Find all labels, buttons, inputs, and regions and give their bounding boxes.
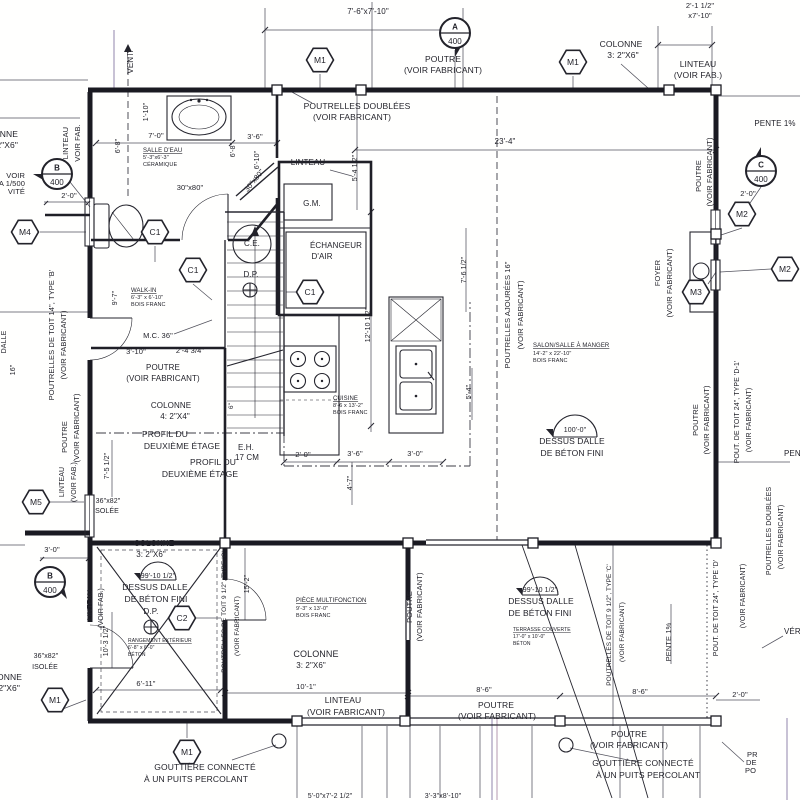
- label-deuxi-me-tage-68: DEUXIÈME ÉTAGE: [144, 441, 221, 451]
- label-pout-de-toit-24-type-d-103: POUT. DE TOIT 24", TYPE 'D': [713, 560, 720, 656]
- gutter-connection-right: [559, 738, 573, 752]
- label-dessus-dalle-135: DESSUS DALLE: [508, 596, 574, 606]
- label-voir-fabricant-27: (VOIR FABRICANT): [72, 393, 81, 463]
- scan-lines: [114, 30, 787, 800]
- label-12-10-1-2-55: 12'-10 1/2": [365, 307, 372, 342]
- section-marker-a-0: A400: [440, 18, 470, 57]
- label-14-2-x-22-10-87: 14'-2" x 22'-10": [533, 351, 572, 357]
- label-5-4-82: 5'-4": [466, 384, 473, 399]
- label-voir-fabricant-123: (VOIR FABRICANT): [234, 596, 241, 656]
- label-pente-1-106: PENTE 1%: [664, 622, 673, 661]
- label-3-2-x6-37: 3: 2"X6": [0, 683, 20, 693]
- gm-closet: G.M.: [303, 199, 321, 208]
- hex-marker-label: M1: [181, 747, 193, 757]
- label-3-2-x6-6: 3: 2"X6": [607, 50, 638, 60]
- label-poutrelles-de-toit-9-1-2-typ-122: POUTRELLES DE TOIT 9 1/2", TYPE 'C': [221, 551, 228, 673]
- label-6-11-117: 6'-11": [136, 679, 155, 688]
- room-terrasse: TERRASSE COUVERTE: [513, 627, 571, 633]
- label-6-74: 6": [228, 402, 235, 409]
- label-17-0-x-10-0-138: 17'-0" x 10'-0": [513, 634, 545, 640]
- walls-layer: [25, 90, 720, 725]
- gutter-connection-left: [272, 734, 286, 748]
- floor-drain-symbol-1: [243, 283, 257, 297]
- vent-note: VENT.: [126, 50, 135, 73]
- section-sheet-number: 400: [43, 586, 57, 595]
- label-c-ramique-43: CÉRAMIQUE: [143, 161, 177, 168]
- hex-marker-label: M2: [736, 209, 748, 219]
- section-letter: C: [758, 161, 764, 170]
- gutter-note-right: GOUTTIÈRE CONNECTÉ: [592, 758, 694, 768]
- label-voir-fabricant-133: (VOIR FABRICANT): [415, 572, 424, 642]
- section-marker-c-2: C400: [746, 147, 776, 186]
- label-3-3-x8-10-154: 3'-3"x8'-10": [425, 793, 462, 800]
- hex-marker-label: M1: [49, 695, 61, 705]
- hex-marker-m1-12: M1: [174, 740, 201, 763]
- label-poutre-97: POUTRE: [691, 404, 700, 436]
- room-salle-deau: SALLE D'EAU: [143, 148, 182, 154]
- label-voir-fabricant-64: (VOIR FABRICANT): [126, 374, 200, 383]
- label-b-ton-139: BÉTON: [513, 640, 531, 647]
- label-voir-fabricant-104: (VOIR FABRICANT): [740, 564, 747, 629]
- label-e-h-71: E.H.: [238, 443, 254, 452]
- floor-drain-symbol-2: [144, 620, 158, 634]
- dim-top-opening: 7'-6"x7'-10": [347, 7, 389, 16]
- hex-marker-c1-4: C1: [180, 258, 207, 281]
- section-letter: B: [47, 572, 53, 581]
- label-3-6-80: 3'-6": [347, 449, 363, 458]
- hex-marker-m2-7: M2: [729, 202, 756, 225]
- doubled-joists-note: POUTRELLES DOUBLÉES: [304, 101, 411, 111]
- label-colonne-127: COLONNE: [293, 649, 338, 659]
- label-poutre-94: POUTRE: [694, 160, 703, 192]
- label-5-0-x7-2-1-2-153: 5'-0"x7'-2 1/2": [308, 793, 353, 800]
- hex-marker-m4-2: M4: [12, 220, 39, 243]
- gutter-note-left: GOUTTIÈRE CONNECTÉ: [154, 762, 256, 772]
- label-un-puits-percolant-150: À UN PUITS PERCOLANT: [596, 770, 700, 780]
- label-de-b-ton-fini-112: DE BÉTON FINI: [124, 594, 187, 604]
- label-linteau-29: LINTEAU: [59, 467, 66, 497]
- label-4-7-76: 4'-7": [347, 475, 354, 490]
- label-6-8-46: 6'-8": [230, 142, 237, 157]
- hex-marker-label: M5: [30, 497, 42, 507]
- label-voir-fab-30: (VOIR FAB.): [71, 462, 78, 502]
- label-x7-10-10: x7'-10": [688, 11, 712, 20]
- label-colonne-36: COLONNE: [0, 672, 22, 682]
- label-3-2-x6-109: 3: 2"X6": [136, 550, 166, 559]
- label-voir-fabricant-85: (VOIR FABRICANT): [516, 280, 525, 350]
- label-8-6-x-13-2-78: 8'-6 x 13'-2": [333, 403, 363, 409]
- label-2-0-144: 2'-0": [732, 690, 748, 699]
- slope-note: PENTE 1%: [754, 119, 795, 128]
- elevation-terrasse: 99'-10 1/2": [523, 587, 558, 594]
- door-size-bath: 30"x80": [177, 183, 204, 192]
- label-dessus-dalle-90: DESSUS DALLE: [539, 436, 605, 446]
- label-linteau-16: LINTEAU: [61, 127, 70, 159]
- room-walkin: WALK-IN: [131, 288, 156, 294]
- floor-plan-page: M1M1M4C1C1C1M5M2M2M3C2M1M1A400B400C400B4…: [0, 0, 800, 800]
- label-17-cm-72: 17 CM: [235, 453, 259, 462]
- hex-marker-label: M1: [567, 57, 579, 67]
- hex-marker-c1-3: C1: [142, 220, 169, 243]
- label-8-6-143: 8'-6": [632, 687, 648, 696]
- label-poutre-145: POUTRE: [478, 700, 514, 710]
- posts-layer: [220, 85, 721, 726]
- bathroom-sink: [167, 96, 231, 140]
- label-voir-fabricant-131: (VOIR FABRICANT): [307, 707, 385, 717]
- label-3-2-x6-128: 3: 2"X6": [296, 661, 326, 670]
- label-voir-fabricant-100: (VOIR FABRICANT): [746, 388, 753, 453]
- label-voir-fabricant-4: (VOIR FABRICANT): [313, 112, 391, 122]
- label-16-23: 16": [10, 364, 17, 375]
- label-v-rifier-107: VÉRIFIER: [784, 627, 800, 636]
- label-3-2-x6-15: 3: 2"X6": [0, 140, 18, 150]
- floor-plan-svg: M1M1M4C1C1C1M5M2M2M3C2M1M1A400B400C400B4…: [0, 0, 800, 800]
- section-sheet-number: 400: [448, 37, 462, 46]
- label-bois-franc-126: BOIS FRANC: [296, 613, 331, 619]
- label-1-10-38: 1'-10": [143, 102, 150, 121]
- label-3-10-61: 3'-10": [126, 347, 146, 356]
- floor-drain-1: D.P.: [244, 270, 259, 279]
- label-bois-franc-88: BOIS FRANC: [533, 358, 568, 364]
- label-5-4-1-2-75: 5'-4 1/2": [352, 154, 359, 181]
- hex-marker-label: C1: [304, 287, 315, 297]
- label-deuxi-me-tage-70: DEUXIÈME ÉTAGE: [162, 469, 239, 479]
- label-poutrelles-de-toit-9-1-2-typ-140: POUTRELLES DE TOIT 9 1/2", TYPE 'C': [606, 564, 613, 686]
- label-poutre-132: POUTRE: [405, 591, 414, 623]
- label-linteau-130: LINTEAU: [325, 695, 362, 705]
- hex-marker-m1-11: M1: [42, 688, 69, 711]
- room-cuisine: CUISINE: [333, 396, 358, 402]
- label-9-3-x-13-0-125: 9'-3" x 13'-0": [296, 606, 328, 612]
- section-sheet-number: 400: [50, 178, 64, 187]
- label-poutre-26: POUTRE: [60, 421, 69, 453]
- label-voir-fabricant-141: (VOIR FABRICANT): [619, 602, 626, 662]
- section-marker-b-3: B400: [35, 562, 77, 599]
- label-de-b-ton-fini-91: DE BÉTON FINI: [540, 448, 603, 458]
- column-note-top: COLONNE: [600, 39, 643, 49]
- label-6-8-x-6-0-115: 6'-8" x 6'-0": [128, 645, 155, 651]
- second-floor-profile-1: PROFIL DU: [142, 429, 188, 439]
- hex-marker-label: M3: [690, 287, 702, 297]
- label-m-c-36-60: M.C. 36": [143, 331, 173, 340]
- label-3-6-45: 3'-6": [247, 132, 263, 141]
- label-un-puits-percolant-152: À UN PUITS PERCOLANT: [144, 774, 248, 784]
- stove: [284, 346, 336, 392]
- label-b-ton-116: BÉTON: [128, 651, 146, 658]
- label-isol-e-32: ISOLÉE: [93, 506, 119, 515]
- label-9-7-59: 9'-7": [112, 290, 119, 305]
- toilet: [94, 204, 143, 248]
- label-voir-fabricant-148: (VOIR FABRICANT): [590, 740, 668, 750]
- air-exchanger: ÉCHANGEUR: [310, 241, 362, 250]
- door-size-left: 36"x82": [96, 498, 121, 505]
- label-6-3-x-6-10-57: 6'-3" x 6'-10": [131, 295, 163, 301]
- section-letter: A: [452, 23, 458, 32]
- label-poutre-147: POUTRE: [611, 729, 647, 739]
- hex-marker-m5-6: M5: [23, 490, 50, 513]
- hex-marker-c1-5: C1: [297, 280, 324, 303]
- beam-note-top: POUTRE: [425, 54, 461, 64]
- label-isol-e-35: ISOLÉE: [32, 662, 58, 671]
- label-voir-fabricant-95: (VOIR FABRICANT): [705, 137, 714, 207]
- label-2-1-1-2-9: 2'-1 1/2": [686, 1, 715, 10]
- elevation-salon: 100'-0": [564, 427, 587, 434]
- fireplace-note: FOYER: [653, 259, 662, 286]
- second-floor-profile-2: PROFIL DU: [190, 457, 236, 467]
- hex-marker-m3-9: M3: [683, 280, 710, 303]
- label-vit-20: VITÉ: [8, 187, 25, 196]
- roof-beam-note-right: POUT. DE TOIT 24", TYPE 'D-1': [734, 361, 741, 464]
- label-poutrelles-doubl-es-101: POUTRELLES DOUBLÉES: [764, 487, 773, 575]
- room-rangement: RANGEMENT EXTÉRIEUR: [128, 637, 192, 644]
- label-15-2-121: 15'-2": [244, 574, 251, 593]
- hex-marker-c2-10: C2: [169, 606, 196, 629]
- label-2-0-73: 2'-0": [295, 450, 311, 459]
- label-5-3-x6-3-42: 5'-3"x6'-3": [143, 155, 169, 161]
- label-linteau-49: LINTEAU: [291, 158, 326, 167]
- section-sheet-number: 400: [754, 175, 768, 184]
- label-de-b-ton-fini-136: DE BÉTON FINI: [508, 608, 571, 618]
- label-voir-fabricant-25: (VOIR FABRICANT): [59, 310, 68, 380]
- label-10-1-129: 10'-1": [296, 682, 316, 691]
- water-heater: C.E.: [244, 239, 260, 248]
- label-7-6-1-2-83: 7'-6 1/2": [461, 256, 468, 283]
- floor-drain-2: D.P.: [144, 607, 159, 616]
- label-7-5-1-2-28: 7'-5 1/2": [104, 452, 111, 479]
- label-colonne-14: COLONNE: [0, 129, 18, 139]
- label-2-0-96: 2'-0": [740, 189, 756, 198]
- hex-marker-label: C1: [149, 227, 160, 237]
- label-2-4-3-4-62: 2'-4 3/4": [176, 346, 205, 355]
- room-salon: SALON/SALLE À MANGER: [533, 342, 610, 349]
- label-8-6-142: 8'-6": [476, 685, 492, 694]
- kitchen-island: [389, 297, 443, 433]
- label-bois-franc-58: BOIS FRANC: [131, 302, 166, 308]
- label-bois-franc-79: BOIS FRANC: [333, 410, 368, 416]
- label-poutre-63: POUTRE: [146, 363, 180, 372]
- label-voir-fabricant-146: (VOIR FABRICANT): [458, 711, 536, 721]
- hex-marker-m1-0: M1: [307, 48, 334, 71]
- door-size-left-2: 36"x82": [34, 653, 59, 660]
- label-voir-fab-120: (VOIR FAB.): [98, 588, 105, 628]
- hex-marker-label: M2: [779, 264, 791, 274]
- label-3-0-81: 3'-0": [407, 449, 423, 458]
- lintel-note-topright: LINTEAU: [680, 59, 717, 69]
- hex-marker-label: M4: [19, 227, 31, 237]
- label-voir-fabricant-93: (VOIR FABRICANT): [665, 248, 674, 318]
- roof-joist-note-left: POUTRELLES DE TOIT 14", TYPE 'B': [47, 269, 56, 400]
- section-marker-b-1: B400: [33, 159, 72, 189]
- label-6-8-40: 6'-8": [115, 138, 122, 153]
- room-multifonction: PIÈCE MULTIFONCTION: [296, 597, 366, 604]
- hex-marker-label: C1: [187, 265, 198, 275]
- section-letter: B: [54, 164, 60, 173]
- label-10-3-1-2-118: 10'-3 1/2": [103, 625, 110, 656]
- label-23-4-12: 23'-4": [495, 137, 516, 146]
- hex-marker-m2-8: M2: [772, 257, 799, 280]
- label-voir-fabricant-2: (VOIR FABRICANT): [404, 65, 482, 75]
- label-pente-1-105: PENTE 1%: [784, 449, 800, 458]
- kitchen-counter: [280, 315, 339, 455]
- hex-marker-label: M1: [314, 55, 326, 65]
- label-voir-fab-8: (VOIR FAB.): [674, 70, 722, 80]
- label-colonne-108: COLONNE: [134, 539, 174, 548]
- label-3-0-33: 3'-0": [44, 545, 60, 554]
- label-6-10-47: 6'-10": [254, 150, 261, 169]
- label-d-air-52: D'AIR: [311, 252, 332, 261]
- label-dessus-dalle-111: DESSUS DALLE: [122, 582, 188, 592]
- label-voir-fabricant-98: (VOIR FABRICANT): [702, 385, 711, 455]
- label-2-0-21: 2'-0": [61, 191, 77, 200]
- label-linteau-119: LINTEAU: [87, 590, 94, 620]
- hex-marker-m1-1: M1: [560, 50, 587, 73]
- label-colonne-65: COLONNE: [151, 401, 191, 410]
- elevation-garage: 99'-10 1/2": [141, 573, 176, 580]
- label-4-2-x4-66: 4: 2"X4": [160, 412, 190, 421]
- label-po-157: PO: [745, 766, 756, 775]
- label-voir-fab-17: VOIR FAB.: [73, 124, 82, 162]
- label-dalle-22: DALLE: [1, 330, 8, 353]
- label-7-0-39: 7'-0": [148, 131, 164, 140]
- open-joist-note: POUTRELLES AJOURÉES 16": [503, 261, 512, 368]
- label-voir-fabricant-102: (VOIR FABRICANT): [778, 505, 785, 570]
- hex-marker-label: C2: [176, 613, 187, 623]
